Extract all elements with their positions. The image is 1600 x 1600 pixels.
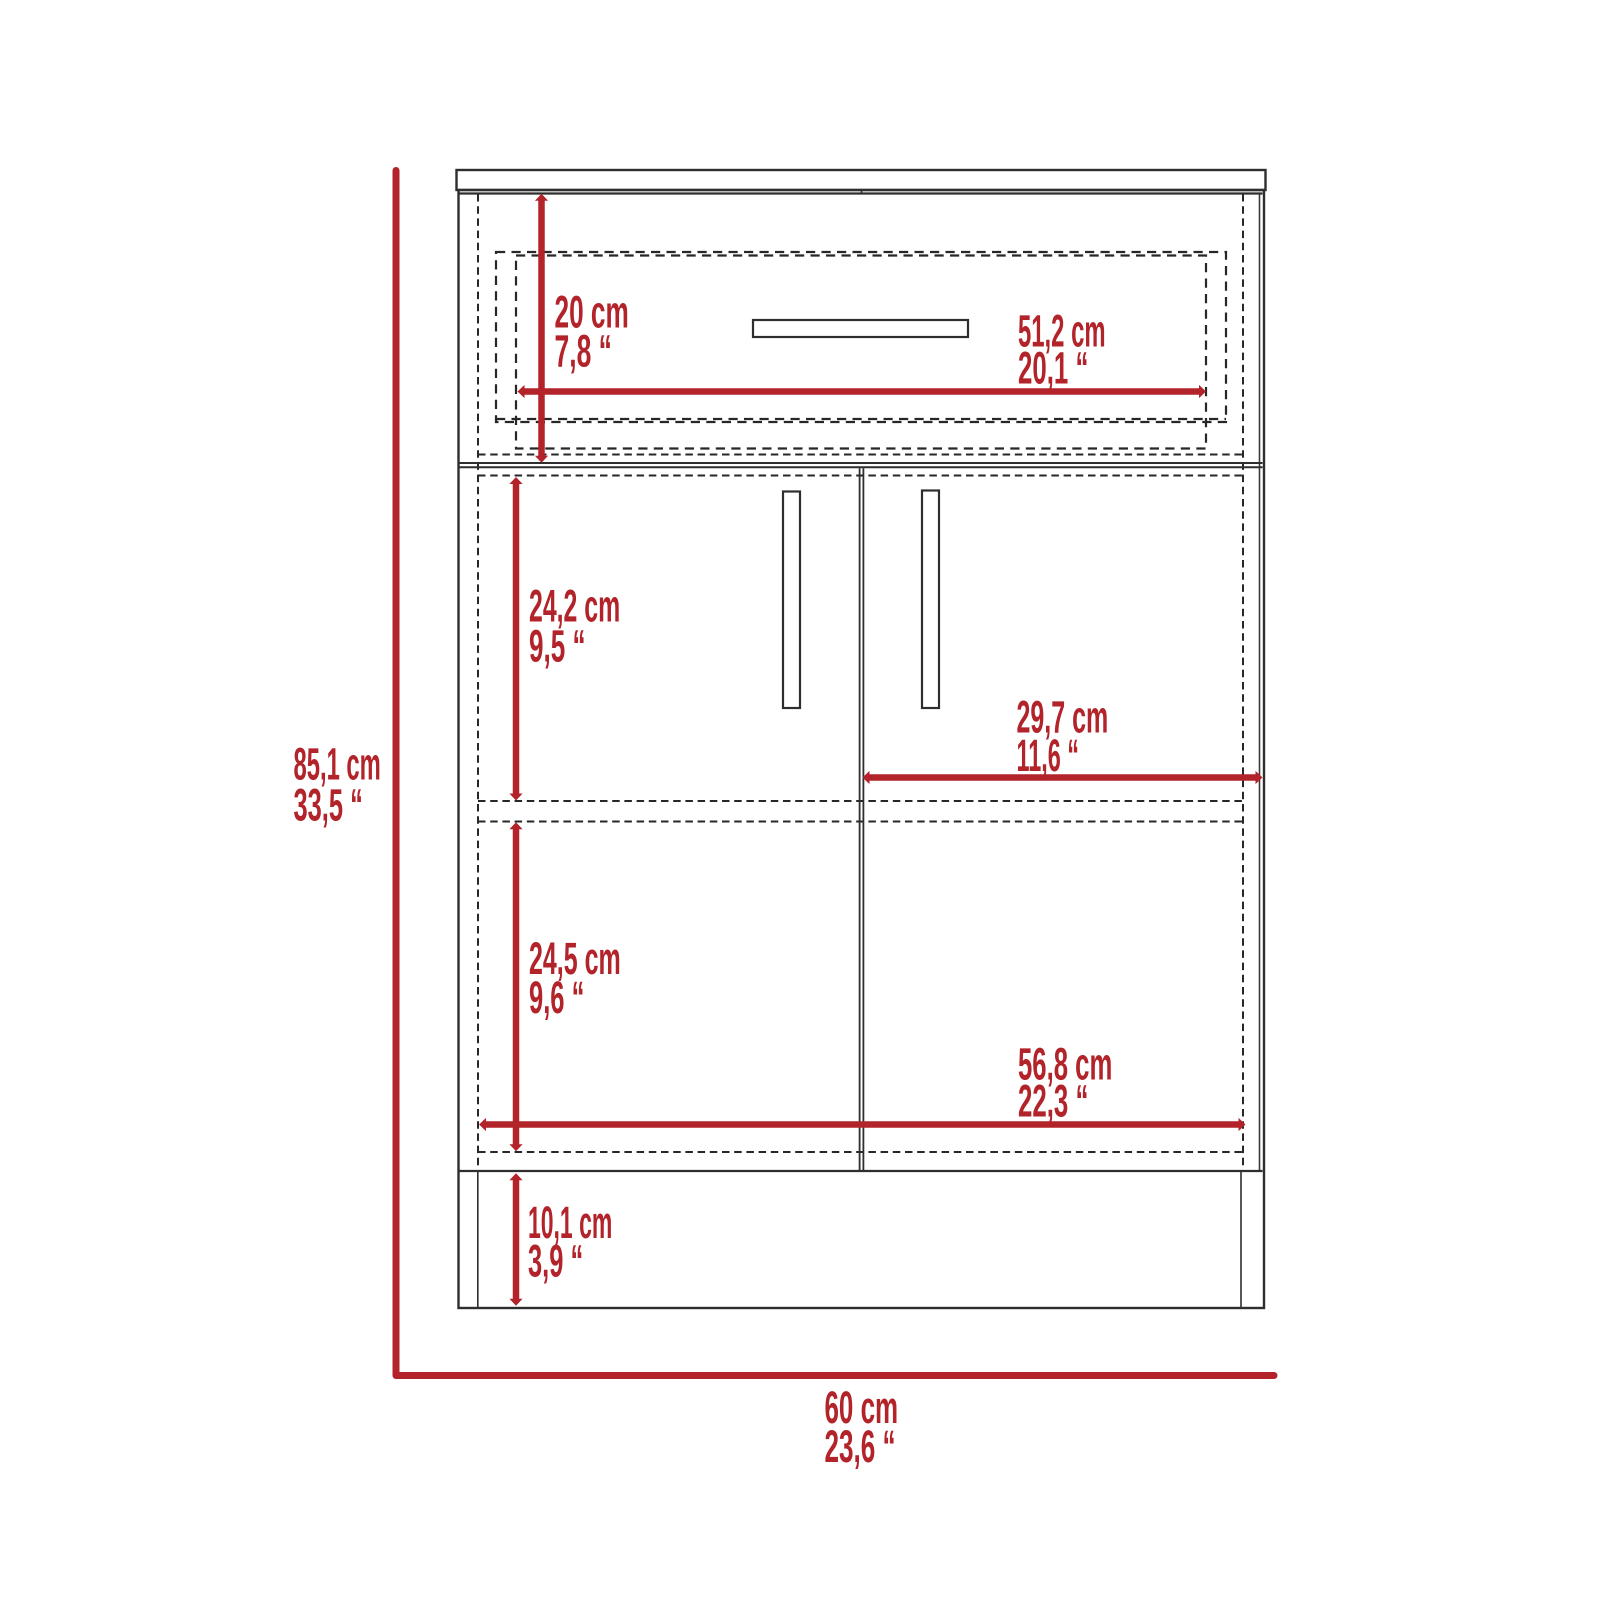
svg-text:22,3 “: 22,3 “ — [1018, 1076, 1088, 1127]
svg-text:3,9 “: 3,9 “ — [528, 1236, 583, 1287]
svg-text:20,1 “: 20,1 “ — [1018, 342, 1088, 393]
svg-text:11,6 “: 11,6 “ — [1017, 730, 1080, 781]
svg-text:33,5 “: 33,5 “ — [294, 780, 363, 831]
svg-text:7,8 “: 7,8 “ — [555, 326, 612, 377]
svg-text:9,5 “: 9,5 “ — [529, 621, 586, 672]
svg-text:23,6 “: 23,6 “ — [825, 1421, 896, 1472]
svg-text:9,6 “: 9,6 “ — [529, 972, 584, 1023]
